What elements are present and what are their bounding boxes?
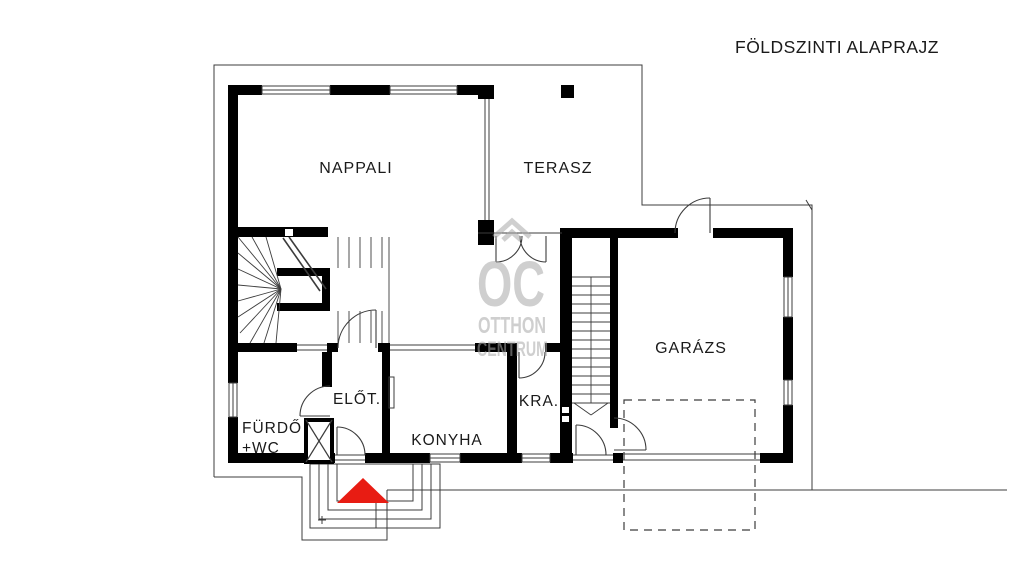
wall-segment: [545, 343, 572, 352]
page-title: FÖLDSZINTI ALAPRAJZ: [735, 37, 939, 57]
room-label-bathroom-line2: +WC: [242, 440, 280, 457]
wall-segment: [713, 228, 793, 238]
wall-segment: [228, 227, 328, 237]
wall-segment: [783, 228, 793, 277]
wall-pillar: [478, 85, 494, 99]
room-label-bathroom-line1: FÜRDŐ: [242, 419, 302, 437]
room-label-kitchen: KONYHA: [411, 432, 482, 449]
room-label-garage: GARÁZS: [655, 338, 727, 357]
shaft-box: [306, 420, 332, 462]
wall-marker-square: [285, 229, 293, 236]
wall-marker-square: [562, 407, 569, 413]
wall-segment: [783, 317, 793, 380]
wall-segment: [322, 352, 332, 387]
wall-segment: [613, 453, 623, 463]
floor-plan-page: OC OTTHON CENTRUM FÖLDSZINTI ALAPRAJZ NA…: [0, 0, 1024, 576]
room-label-pantry: KRA.: [519, 393, 559, 410]
wall-marker-square: [562, 416, 569, 422]
wall-segment: [560, 228, 678, 238]
watermark-name-line1: OTTHON: [478, 312, 546, 338]
room-label-living: NAPPALI: [319, 160, 392, 177]
wall-segment: [365, 453, 430, 463]
wall-segment: [330, 85, 390, 95]
wall-segment: [238, 343, 297, 352]
room-label-terrace: TERASZ: [523, 160, 592, 177]
room-label-hall: ELŐT.: [333, 391, 381, 408]
wall-segment: [610, 238, 618, 428]
wall-segment: [783, 405, 793, 462]
watermark-initials: OC: [477, 248, 545, 320]
terrace-column: [561, 85, 574, 98]
wall-segment: [327, 343, 338, 352]
floor-plan-drawing: OC OTTHON CENTRUM FÖLDSZINTI ALAPRAJZ NA…: [0, 0, 1024, 576]
wall-segment: [228, 85, 262, 95]
watermark-name-line2: CENTRUM: [477, 338, 548, 361]
wall-segment: [507, 352, 517, 462]
stair-spine-wall: [322, 268, 330, 311]
